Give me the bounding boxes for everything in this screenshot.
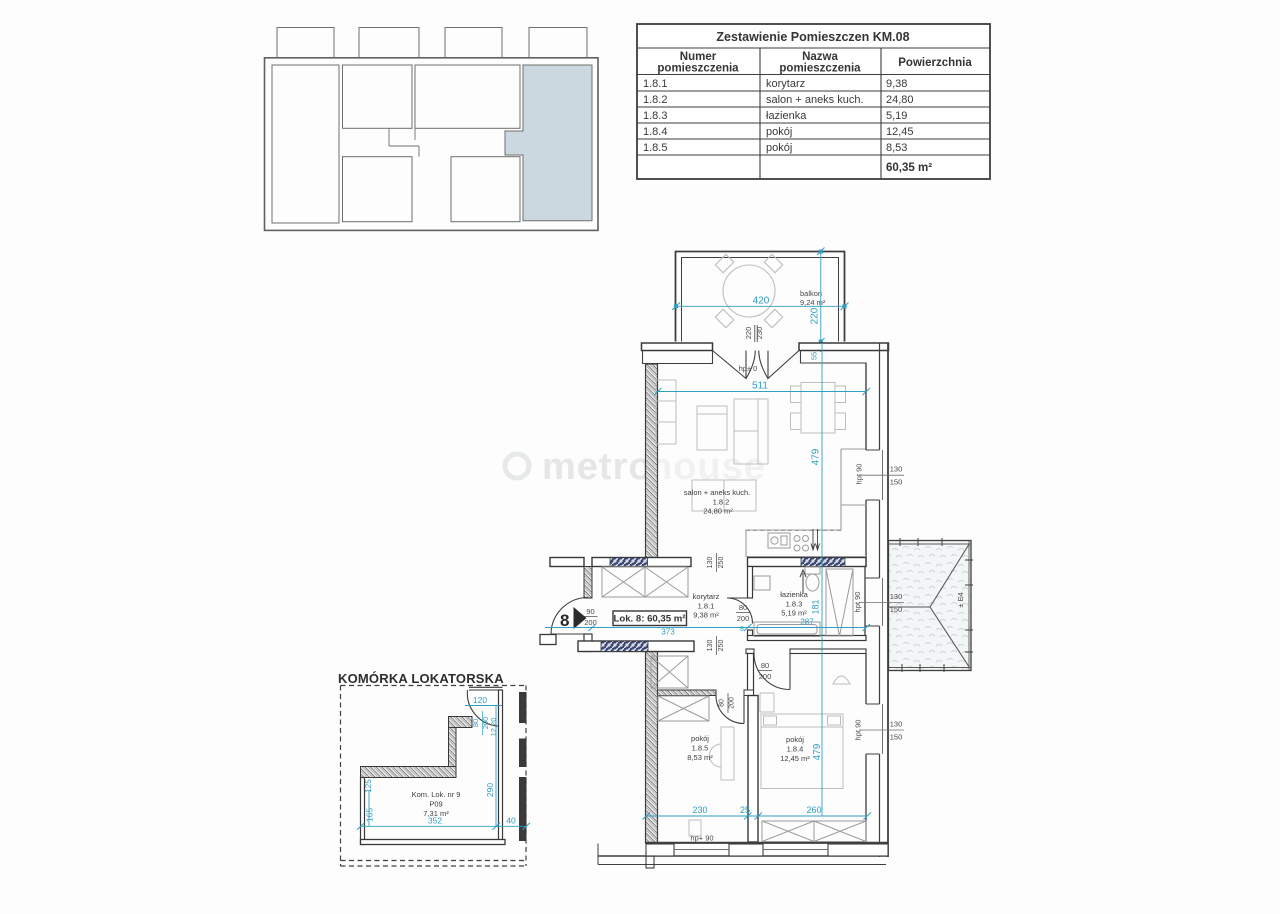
svg-text:25: 25 xyxy=(740,805,750,815)
svg-text:łazienka: łazienka xyxy=(780,590,808,599)
svg-text:9,24 m²: 9,24 m² xyxy=(800,298,826,307)
svg-text:150: 150 xyxy=(890,733,903,742)
svg-text:pokój: pokój xyxy=(786,735,804,744)
svg-text:8,53 m²: 8,53 m² xyxy=(687,753,713,762)
svg-text:260: 260 xyxy=(806,805,821,815)
svg-text:hpt 90: hpt 90 xyxy=(853,592,862,613)
svg-text:200: 200 xyxy=(737,614,750,623)
svg-text:287: 287 xyxy=(800,618,814,627)
svg-text:80: 80 xyxy=(761,661,769,670)
svg-text:12,45 m²: 12,45 m² xyxy=(780,754,810,763)
svg-text:181: 181 xyxy=(811,599,821,614)
svg-text:pokój: pokój xyxy=(766,142,792,154)
svg-text:salon + aneks kuch.: salon + aneks kuch. xyxy=(684,488,751,497)
svg-text:130: 130 xyxy=(707,640,714,652)
svg-text:9,38: 9,38 xyxy=(886,78,907,90)
svg-text:1.8.2: 1.8.2 xyxy=(713,498,730,507)
svg-text:1.8.3: 1.8.3 xyxy=(643,110,667,122)
svg-text:250: 250 xyxy=(718,640,725,652)
svg-text:hp± 0: hp± 0 xyxy=(739,364,758,373)
svg-text:korytarz: korytarz xyxy=(693,592,720,601)
svg-text:220: 220 xyxy=(744,327,753,340)
svg-text:130: 130 xyxy=(890,465,903,474)
svg-text:230: 230 xyxy=(692,805,707,815)
svg-text:hp+ 90: hp+ 90 xyxy=(690,834,713,843)
svg-text:pomieszczenia: pomieszczenia xyxy=(779,63,861,75)
svg-text:1.8.3: 1.8.3 xyxy=(786,600,803,609)
svg-text:5,19: 5,19 xyxy=(886,110,907,122)
svg-text:Kom. Lok. nr 9: Kom. Lok. nr 9 xyxy=(412,790,461,799)
svg-text:1.8.4: 1.8.4 xyxy=(787,745,804,754)
svg-text:8,53: 8,53 xyxy=(886,142,907,154)
svg-text:165: 165 xyxy=(365,808,375,822)
svg-text:8: 8 xyxy=(740,626,744,633)
svg-text:511: 511 xyxy=(752,381,768,392)
svg-text:P09: P09 xyxy=(429,800,442,809)
svg-text:373: 373 xyxy=(661,628,675,637)
svg-text:1.8.5: 1.8.5 xyxy=(643,142,667,154)
svg-text:korytarz: korytarz xyxy=(766,78,805,90)
svg-text:hpt 90: hpt 90 xyxy=(854,720,863,741)
svg-text:150: 150 xyxy=(890,605,903,614)
svg-text:150: 150 xyxy=(890,478,903,487)
svg-text:55: 55 xyxy=(810,352,819,360)
svg-text:130: 130 xyxy=(707,557,714,569)
svg-text:125: 125 xyxy=(364,779,373,793)
svg-text:Powierzchnia: Powierzchnia xyxy=(898,57,972,69)
svg-text:230: 230 xyxy=(755,327,764,340)
svg-text:60,35 m²: 60,35 m² xyxy=(886,162,932,174)
svg-text:290: 290 xyxy=(485,783,495,797)
svg-text:12,20: 12,20 xyxy=(489,718,498,737)
svg-text:1.8.1: 1.8.1 xyxy=(698,602,715,611)
svg-text:24,80 m²: 24,80 m² xyxy=(703,507,733,516)
svg-text:12,45: 12,45 xyxy=(886,126,914,138)
svg-text:420: 420 xyxy=(753,296,770,307)
svg-text:Nazwa: Nazwa xyxy=(802,51,838,63)
svg-text:352: 352 xyxy=(428,816,442,826)
svg-text:KOMÓRKA LOKATORSKA: KOMÓRKA LOKATORSKA xyxy=(338,671,504,686)
svg-text:24,80: 24,80 xyxy=(886,94,914,106)
svg-text:± E4: ± E4 xyxy=(956,592,965,607)
svg-text:220: 220 xyxy=(810,307,821,324)
svg-text:479: 479 xyxy=(811,448,822,465)
svg-text:Lok. 8: 60,35 m²: Lok. 8: 60,35 m² xyxy=(614,614,686,625)
svg-text:200: 200 xyxy=(729,697,736,709)
svg-text:1.8.4: 1.8.4 xyxy=(643,126,667,138)
svg-text:łazienka: łazienka xyxy=(766,110,807,122)
svg-text:1.8.1: 1.8.1 xyxy=(643,78,667,90)
svg-text:80: 80 xyxy=(739,603,747,612)
svg-text:pokój: pokój xyxy=(691,734,709,743)
svg-text:9,38 m²: 9,38 m² xyxy=(693,611,719,620)
svg-text:80: 80 xyxy=(719,699,726,707)
svg-text:pokój: pokój xyxy=(766,126,792,138)
svg-text:90: 90 xyxy=(586,607,594,616)
svg-text:479: 479 xyxy=(812,743,823,760)
svg-text:130: 130 xyxy=(890,592,903,601)
svg-text:house: house xyxy=(649,446,766,488)
svg-text:80: 80 xyxy=(471,719,480,727)
svg-text:120: 120 xyxy=(473,695,487,705)
svg-text:salon + aneks kuch.: salon + aneks kuch. xyxy=(766,94,864,106)
svg-text:40: 40 xyxy=(506,816,516,826)
svg-text:hpt 90: hpt 90 xyxy=(855,464,864,485)
svg-text:200: 200 xyxy=(759,672,772,681)
svg-text:balkon: balkon xyxy=(800,289,822,298)
svg-text:250: 250 xyxy=(718,557,725,569)
svg-text:metro: metro xyxy=(542,446,653,488)
svg-text:Zestawienie Pomieszczen KM.08: Zestawienie Pomieszczen KM.08 xyxy=(716,30,909,44)
svg-text:1.8.5: 1.8.5 xyxy=(692,744,709,753)
svg-text:1.8.2: 1.8.2 xyxy=(643,94,667,106)
svg-text:130: 130 xyxy=(890,720,903,729)
svg-text:5,19 m²: 5,19 m² xyxy=(781,609,807,618)
svg-text:pomieszczenia: pomieszczenia xyxy=(657,63,739,75)
svg-text:Numer: Numer xyxy=(680,51,717,63)
